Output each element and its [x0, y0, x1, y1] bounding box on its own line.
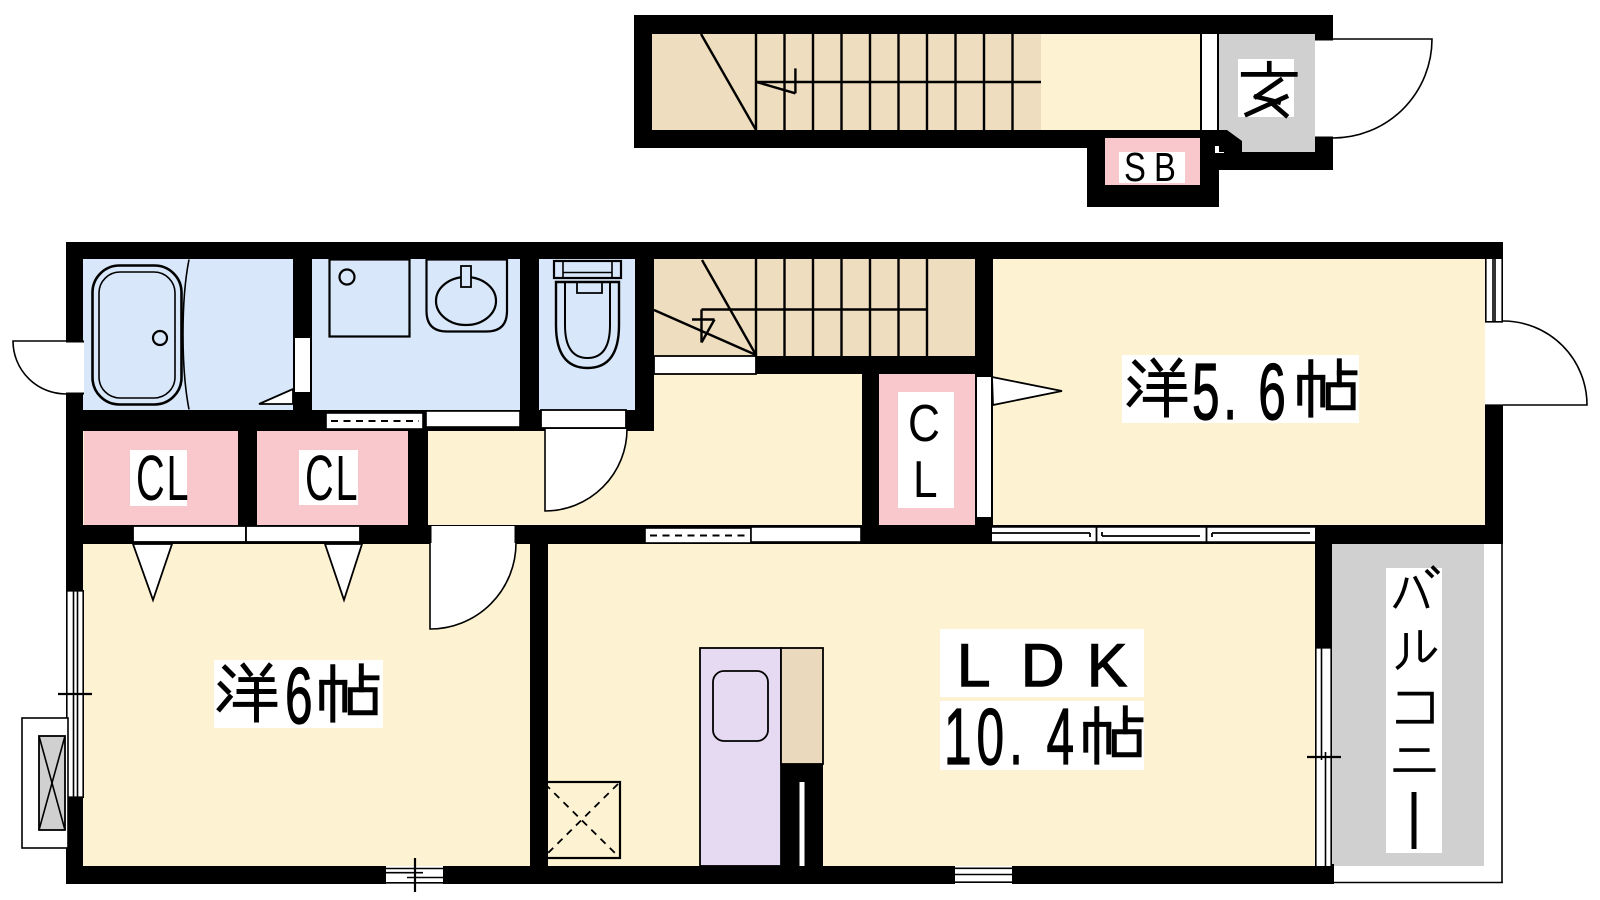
svg-text:CL: CL: [136, 444, 190, 515]
svg-text:6: 6: [285, 652, 313, 741]
svg-text:5. 6: 5. 6: [1192, 348, 1290, 437]
svg-text:10. 4: 10. 4: [944, 693, 1079, 782]
svg-text:CL: CL: [305, 444, 359, 515]
svg-text:D: D: [1021, 632, 1064, 699]
svg-text:L: L: [957, 632, 990, 699]
svg-text:C: C: [908, 395, 940, 453]
svg-text:S: S: [1124, 143, 1146, 189]
svg-text:L: L: [913, 451, 938, 509]
svg-text:K: K: [1087, 632, 1127, 699]
svg-text:B: B: [1154, 143, 1176, 189]
